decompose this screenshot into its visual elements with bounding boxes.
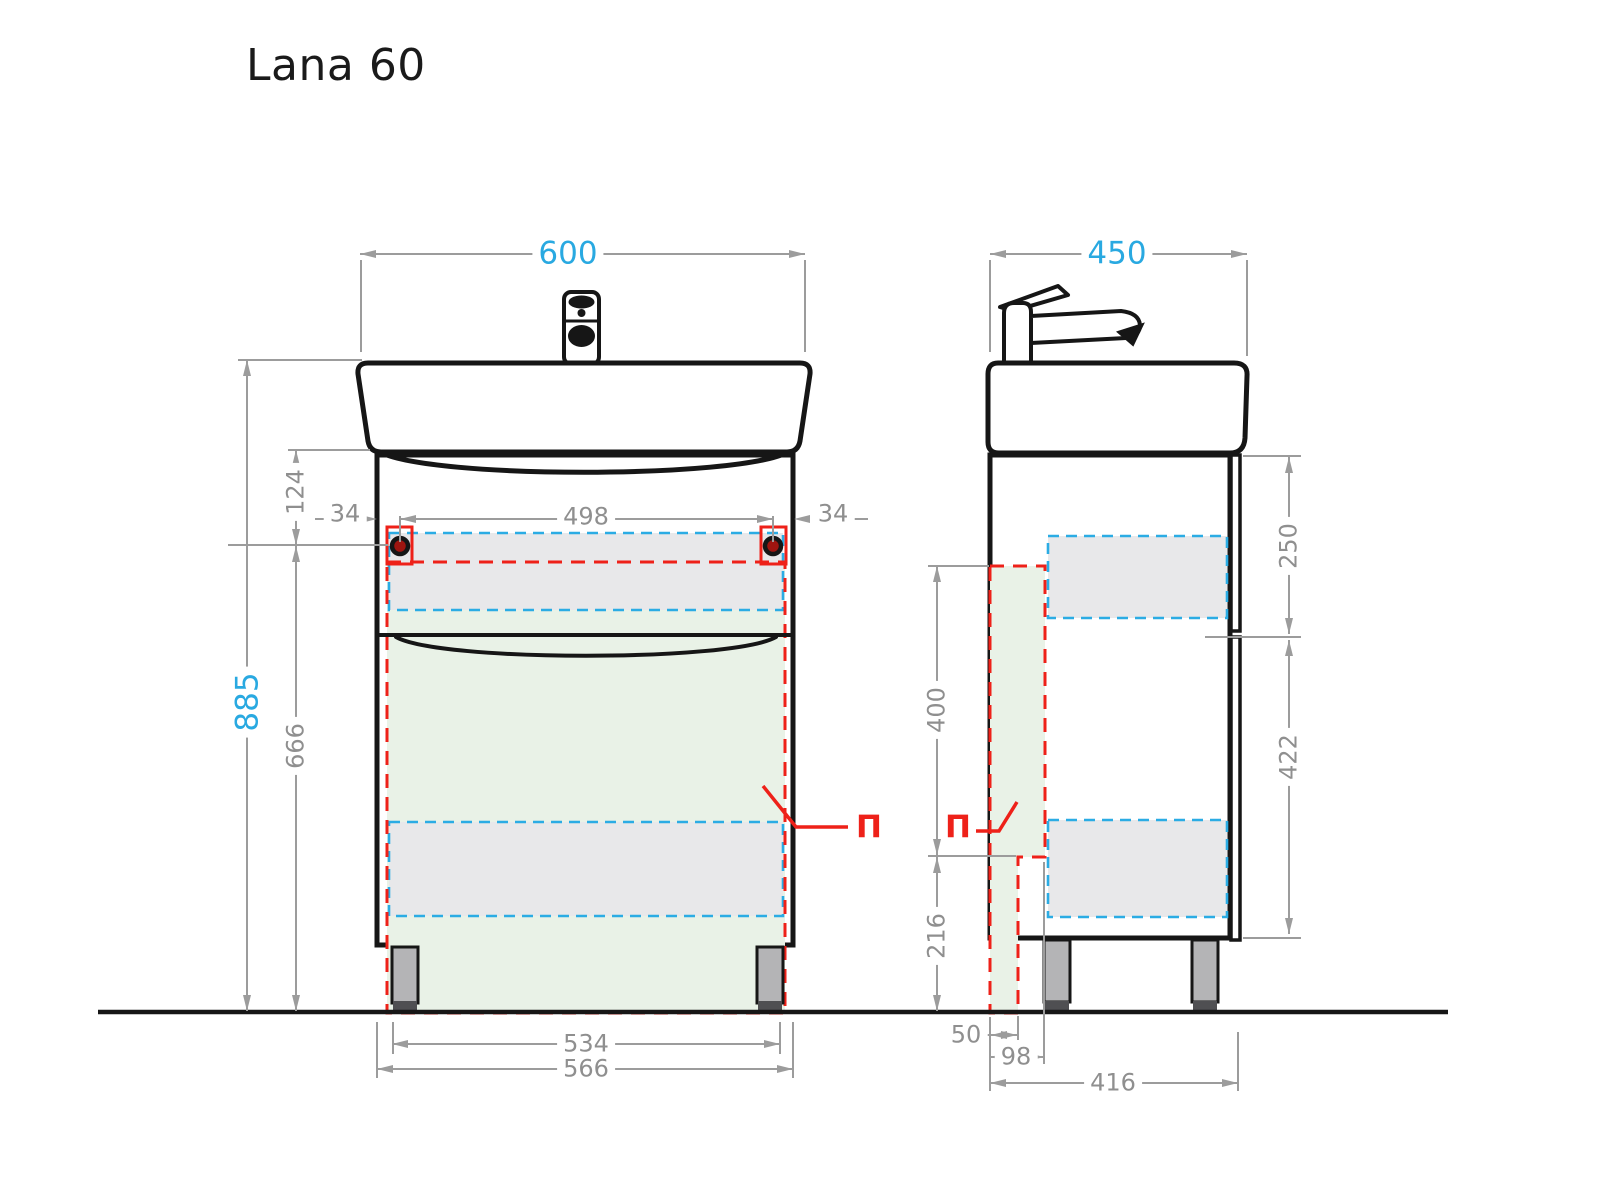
dim-arrow bbox=[1285, 640, 1293, 656]
dim-arrow bbox=[243, 360, 251, 376]
dim-arrow bbox=[1285, 918, 1293, 934]
side-top-drawer-label: 250 bbox=[1276, 517, 1301, 575]
ext-line bbox=[376, 1022, 378, 1078]
front-handle-inset-right-label: 34 bbox=[812, 501, 855, 526]
side-sink bbox=[988, 363, 1247, 453]
ext-line bbox=[772, 516, 774, 542]
front-bottom-drawer-box bbox=[389, 822, 783, 916]
front-total-height-label: 885 bbox=[232, 666, 265, 737]
dim-arrow bbox=[400, 515, 416, 523]
dim-arrow bbox=[1285, 457, 1293, 473]
ext-line bbox=[1243, 937, 1301, 939]
dim-arrow bbox=[990, 250, 1006, 258]
ext-line bbox=[804, 260, 806, 352]
ext-line bbox=[1243, 455, 1301, 457]
dim-arrow bbox=[292, 529, 300, 545]
dim-arrow bbox=[1231, 250, 1247, 258]
front-upper-offset-label: 124 bbox=[283, 463, 308, 521]
front-width-label: 600 bbox=[532, 238, 603, 271]
dim-arrow bbox=[764, 1040, 780, 1048]
front-faucet bbox=[564, 292, 599, 364]
front-view bbox=[358, 292, 848, 1013]
dim-arrow bbox=[777, 1065, 793, 1073]
dim-arrow bbox=[933, 566, 941, 582]
ext-line bbox=[399, 516, 401, 542]
dim-arrow bbox=[392, 1040, 408, 1048]
side-top-drawer-front bbox=[1231, 455, 1240, 631]
ext-line bbox=[228, 544, 388, 546]
front-body-width-label: 566 bbox=[557, 1056, 615, 1081]
front-leg-span-label: 534 bbox=[557, 1031, 615, 1056]
side-section-label: П bbox=[945, 812, 971, 845]
ext-line bbox=[792, 1022, 794, 1078]
dim-arrow bbox=[292, 546, 300, 562]
side-bottom-drawer-box bbox=[1048, 820, 1227, 917]
ext-line bbox=[1043, 862, 1045, 1064]
ext-line bbox=[779, 1022, 781, 1054]
side-depth-label: 450 bbox=[1081, 238, 1152, 271]
ext-line bbox=[1017, 1016, 1019, 1040]
ext-line bbox=[1246, 260, 1248, 356]
side-top-drawer-box bbox=[1048, 536, 1227, 618]
side-inner-front-label: 400 bbox=[924, 681, 949, 739]
dim-arrow bbox=[757, 515, 773, 523]
side-plinth-inset-label: 50 bbox=[945, 1022, 988, 1047]
dim-arrow bbox=[1285, 618, 1293, 634]
front-section-zone bbox=[387, 562, 785, 1013]
front-section-label: П bbox=[856, 812, 882, 845]
dim-arrow bbox=[1222, 1079, 1238, 1087]
dim-arrow bbox=[292, 995, 300, 1011]
dim-arrow bbox=[377, 1065, 393, 1073]
dim-arrow bbox=[243, 995, 251, 1011]
dim-arrow bbox=[794, 515, 810, 523]
side-view bbox=[976, 286, 1247, 1013]
dim-arrow bbox=[933, 839, 941, 855]
ext-line bbox=[928, 565, 989, 567]
drawing-layer bbox=[0, 0, 1600, 1200]
ext-line bbox=[238, 359, 362, 361]
side-lower-zone-label: 216 bbox=[924, 907, 949, 965]
ext-line bbox=[989, 260, 991, 352]
dim-arrow bbox=[789, 250, 805, 258]
technical-drawing-canvas: Lana 60 bbox=[0, 0, 1600, 1200]
side-legs bbox=[1044, 940, 1218, 1011]
side-faucet bbox=[1000, 286, 1143, 363]
ext-line bbox=[360, 260, 362, 352]
ext-line bbox=[989, 1017, 991, 1091]
dim-arrow bbox=[1001, 1031, 1017, 1039]
front-handle-inset-left-label: 34 bbox=[324, 501, 367, 526]
side-bottom-drawer-front bbox=[1231, 637, 1240, 940]
dim-line bbox=[295, 545, 297, 1011]
dim-arrow bbox=[990, 1079, 1006, 1087]
ext-line bbox=[392, 1022, 394, 1054]
side-bottom-drawer-label: 422 bbox=[1276, 728, 1301, 786]
dim-arrow bbox=[360, 250, 376, 258]
front-handle-span-label: 498 bbox=[557, 504, 615, 529]
ext-line bbox=[1237, 1032, 1239, 1091]
ext-line bbox=[1205, 636, 1301, 638]
ext-line bbox=[928, 855, 1016, 857]
dim-arrow bbox=[933, 857, 941, 873]
side-leg-depth-label: 416 bbox=[1084, 1070, 1142, 1095]
dim-line bbox=[1288, 640, 1290, 934]
front-lower-height-label: 666 bbox=[283, 717, 308, 775]
side-plinth-depth-label: 98 bbox=[995, 1044, 1038, 1069]
dim-arrow bbox=[933, 995, 941, 1011]
ext-line bbox=[288, 449, 370, 451]
front-top-drawer-box bbox=[389, 533, 783, 610]
